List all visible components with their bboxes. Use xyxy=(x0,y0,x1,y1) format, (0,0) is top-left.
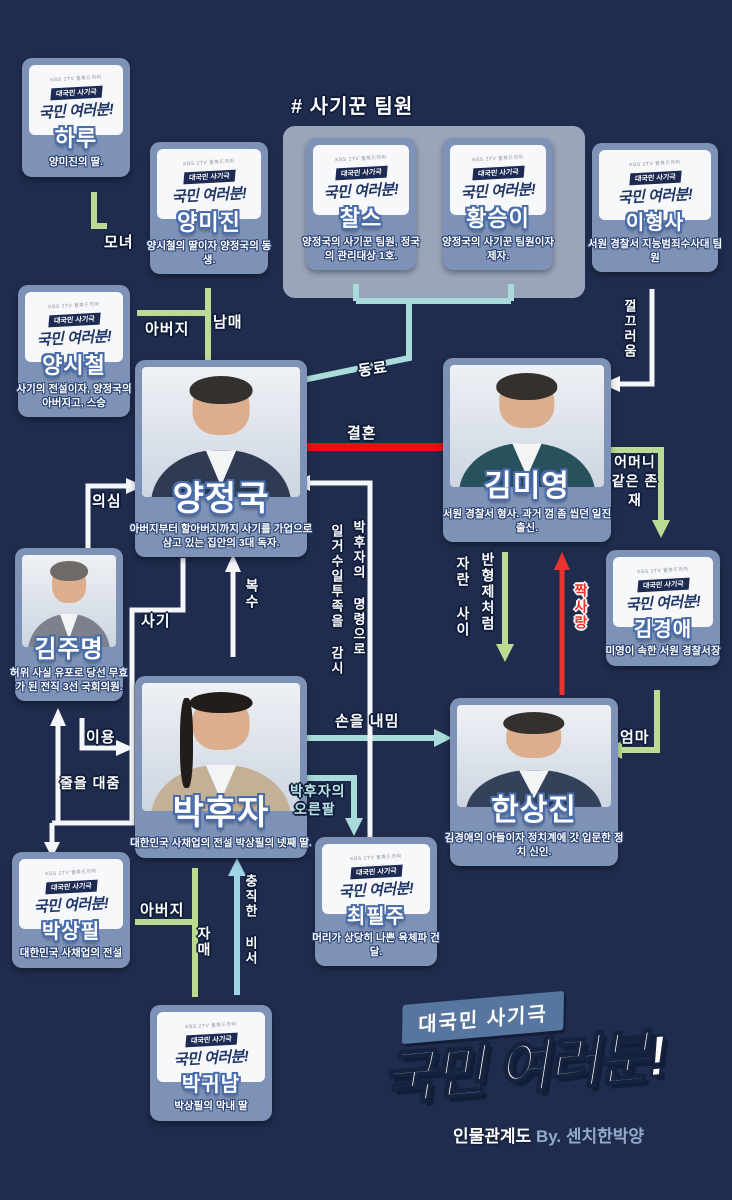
line-haru-mijin xyxy=(94,192,107,226)
logo-title: 국민 여러분! xyxy=(22,891,121,917)
logo-title: 국민 여러분! xyxy=(325,876,428,902)
label-monyeo: 모녀 xyxy=(104,231,134,252)
arrow-down-pilju xyxy=(345,818,363,836)
card-parkhooja: 박후자 대한민국 사채업의 전설 박상필의 넷째 딸. xyxy=(135,676,307,858)
character-name: 찰스 xyxy=(313,201,409,233)
character-name: 김경애 xyxy=(613,613,713,642)
character-name: 한상진 xyxy=(457,785,611,829)
character-name: 양미진 xyxy=(157,205,261,237)
character-name: 박후자 xyxy=(142,785,300,834)
logo-broadcaster: KBS 2TV 월화드라마 xyxy=(160,156,258,168)
card-hwangseungyi: KBS 2TV 월화드라마 대국민 사기극 국민 여러분! 황승이 양정국의 사… xyxy=(443,138,553,270)
label-gamsi-left: 일거수일투족을 감시 xyxy=(327,524,346,676)
label-jamae: 자매 xyxy=(194,926,214,958)
character-name: 황승이 xyxy=(450,201,546,233)
card-yangsichul: KBS 2TV 월화드라마 대국민 사기극 국민 여러분! 양시철 사기의 전설… xyxy=(18,285,130,417)
label-uisim: 의심 xyxy=(92,490,122,511)
card-kimkyungae: KBS 2TV 월화드라마 대국민 사기극 국민 여러분! 김경애 미영이 속한… xyxy=(606,550,720,666)
character-name: 하루 xyxy=(29,121,123,153)
logo-title: 국민 여러분! xyxy=(453,178,544,204)
label-sagi: 사기 xyxy=(141,610,171,631)
character-name: 김미영 xyxy=(450,461,604,505)
card-parksangpil: KBS 2TV 월화드라마 대국민 사기극 국민 여러분! 박상필 대한민국 사… xyxy=(12,852,130,968)
label-dongryo: 동료 xyxy=(357,356,389,381)
logo-title: 국민 여러분! xyxy=(28,325,121,351)
card-hansangjin: 한상진 김경애의 아들이자 정치계에 갓 입문한 정치 신인. xyxy=(450,698,618,866)
person-silhouette xyxy=(499,377,554,428)
logo-broadcaster: KBS 2TV 월화드라마 xyxy=(160,1019,262,1031)
character-desc: 머리가 상당히 나쁜 육체파 건달. xyxy=(309,932,443,959)
character-name: 이형사 xyxy=(599,206,711,235)
logo-title: 국민 여러분! xyxy=(160,1044,263,1070)
label-abeoji-yang: 아버지 xyxy=(145,318,189,339)
arrow-up-jumyung xyxy=(50,708,66,726)
person-silhouette xyxy=(52,564,86,603)
person-silhouette xyxy=(193,696,250,750)
card-haru: KBS 2TV 월화드라마 대국민 사기극 국민 여러분! 하루 양미진의 딸. xyxy=(22,58,130,177)
character-desc: 양미진의 딸. xyxy=(16,156,136,170)
footer-credit: 인물관계도 By. 센치한박양 xyxy=(453,1122,644,1147)
arrow-down-kyungae xyxy=(652,520,670,538)
card-kimjumyung: 김주명 허위 사실 유포로 당선 무효가 된 전직 3선 국회의원. xyxy=(15,548,123,701)
footer-credit-by: By. 센치한박양 xyxy=(536,1127,644,1146)
label-ban-hyungje: 반형제처럼 xyxy=(478,552,498,632)
logo-broadcaster: KBS 2TV 월화드라마 xyxy=(602,157,708,170)
logo-broadcaster: KBS 2TV 월화드라마 xyxy=(325,851,427,863)
label-eomeoni-gateun: 어머니 같은 존재 xyxy=(606,453,664,510)
logo-broadcaster: KBS 2TV 월화드라마 xyxy=(616,565,710,577)
logo-broadcaster: KBS 2TV 월화드라마 xyxy=(32,73,120,85)
label-chungjik-biseo: 충직한 비서 xyxy=(241,874,260,966)
character-desc: 서원 경찰서 지능범죄수사대 팀원 xyxy=(586,238,724,265)
card-yangjungkook: 양정국 아버지부터 할아버지까지 사기를 가업으로 삼고 있는 집안의 3대 독… xyxy=(135,360,307,557)
character-desc: 대한민국 사채업의 전설 xyxy=(6,947,136,961)
logo-broadcaster: KBS 2TV 월화드라마 xyxy=(316,153,406,165)
character-desc: 허위 사실 유포로 당선 무효가 된 전직 3선 국회의원. xyxy=(9,667,129,694)
label-jaran-sai: 자란 사이 xyxy=(453,556,473,638)
card-yangmijin: KBS 2TV 월화드라마 대국민 사기극 국민 여러분! 양미진 양시철의 딸… xyxy=(150,142,268,274)
card-leehyungsa: KBS 2TV 월화드라마 대국민 사기극 국민 여러분! 이형사 서원 경찰서… xyxy=(592,143,718,272)
label-gamsi-right: 박후자의 명령으로 xyxy=(349,520,368,657)
logo-title: 국민 여러분! xyxy=(32,98,121,124)
character-desc: 김경애의 아들이자 정치계에 갓 입문한 정치 신인. xyxy=(444,832,624,859)
card-choipilju: KBS 2TV 월화드라마 대국민 사기극 국민 여러분! 최필주 머리가 상당… xyxy=(315,837,437,966)
person-silhouette xyxy=(506,715,561,758)
character-desc: 박상필의 막내 딸 xyxy=(144,1100,278,1114)
character-name: 양시철 xyxy=(25,348,123,380)
label-jjaksarang: 짝사랑 xyxy=(571,583,591,631)
character-desc: 양정국의 사기꾼 팀원, 정국의 관리대상 1호. xyxy=(300,236,422,263)
label-oreunpal-line1: 박후자의 xyxy=(290,781,346,801)
character-desc: 양정국의 사기꾼 팀원이자 제자. xyxy=(437,236,559,263)
label-nammae: 남매 xyxy=(213,311,243,332)
relationship-chart: { "meta": { "background": "#1f2c4d", "ch… xyxy=(0,0,732,1200)
label-boksu: 복수 xyxy=(242,578,262,610)
logo-broadcaster: KBS 2TV 월화드라마 xyxy=(453,153,543,165)
card-kimmiyoung: 김미영 서원 경찰서 형사. 과거 껌 좀 씹던 일진 출신. xyxy=(443,358,611,542)
logo-title: 국민 여러분! xyxy=(602,182,709,209)
character-name: 최필주 xyxy=(322,900,430,929)
label-gyeolhon: 결혼 xyxy=(347,422,377,443)
character-desc: 양시철의 딸이자 양정국의 동생. xyxy=(144,240,274,267)
character-desc: 대한민국 사채업의 전설 박상필의 넷째 딸. xyxy=(129,837,313,851)
logo-broadcaster: KBS 2TV 월화드라마 xyxy=(28,300,120,312)
character-name: 김주명 xyxy=(22,629,116,664)
label-abeoji-park: 아버지 xyxy=(140,899,184,920)
label-iyong: 이용 xyxy=(86,726,116,747)
label-kkeulkkeureoum: 껄끄러움 xyxy=(620,299,639,359)
arrow-up-jjaksarang xyxy=(554,552,570,570)
character-desc: 아버지부터 할아버지까지 사기를 가업으로 삼고 있는 집안의 3대 독자. xyxy=(129,523,313,550)
character-name: 박귀남 xyxy=(157,1068,265,1097)
logo-title: 국민 여러분! xyxy=(316,178,407,204)
label-jureul-daejum: 줄을 대줌 xyxy=(60,773,120,793)
logo-broadcaster: KBS 2TV 월화드라마 xyxy=(22,866,120,878)
logo-title: 국민 여러분! xyxy=(160,181,259,207)
card-charles: KBS 2TV 월화드라마 대국민 사기극 국민 여러분! 찰스 양정국의 사기… xyxy=(306,138,416,270)
character-name: 양정국 xyxy=(142,471,300,520)
logo-title: 국민 여러분! xyxy=(616,590,711,616)
card-parkgwinam: KBS 2TV 월화드라마 대국민 사기극 국민 여러분! 박귀남 박상필의 막… xyxy=(150,1005,272,1121)
fraud-team-header: # 사기꾼 팀원 xyxy=(291,90,413,119)
character-desc: 서원 경찰서 형사. 과거 껌 좀 씹던 일진 출신. xyxy=(437,508,617,535)
arrow-down-sangjin-sibling xyxy=(496,644,514,662)
line-sangpil-daughters xyxy=(135,868,195,997)
person-silhouette xyxy=(193,380,250,435)
label-soneul-naemim: 손을 내밈 xyxy=(335,710,399,731)
label-eomma: 엄마 xyxy=(620,726,650,747)
label-oreunpal-line2: 오른팔 xyxy=(294,799,336,819)
character-name: 박상필 xyxy=(19,915,123,944)
character-desc: 미영이 속한 서원 경찰서장 xyxy=(600,645,726,659)
footer-credit-prefix: 인물관계도 xyxy=(453,1127,531,1146)
character-desc: 사기의 전설이자, 양정국의 아버지고, 스승 xyxy=(12,383,136,410)
